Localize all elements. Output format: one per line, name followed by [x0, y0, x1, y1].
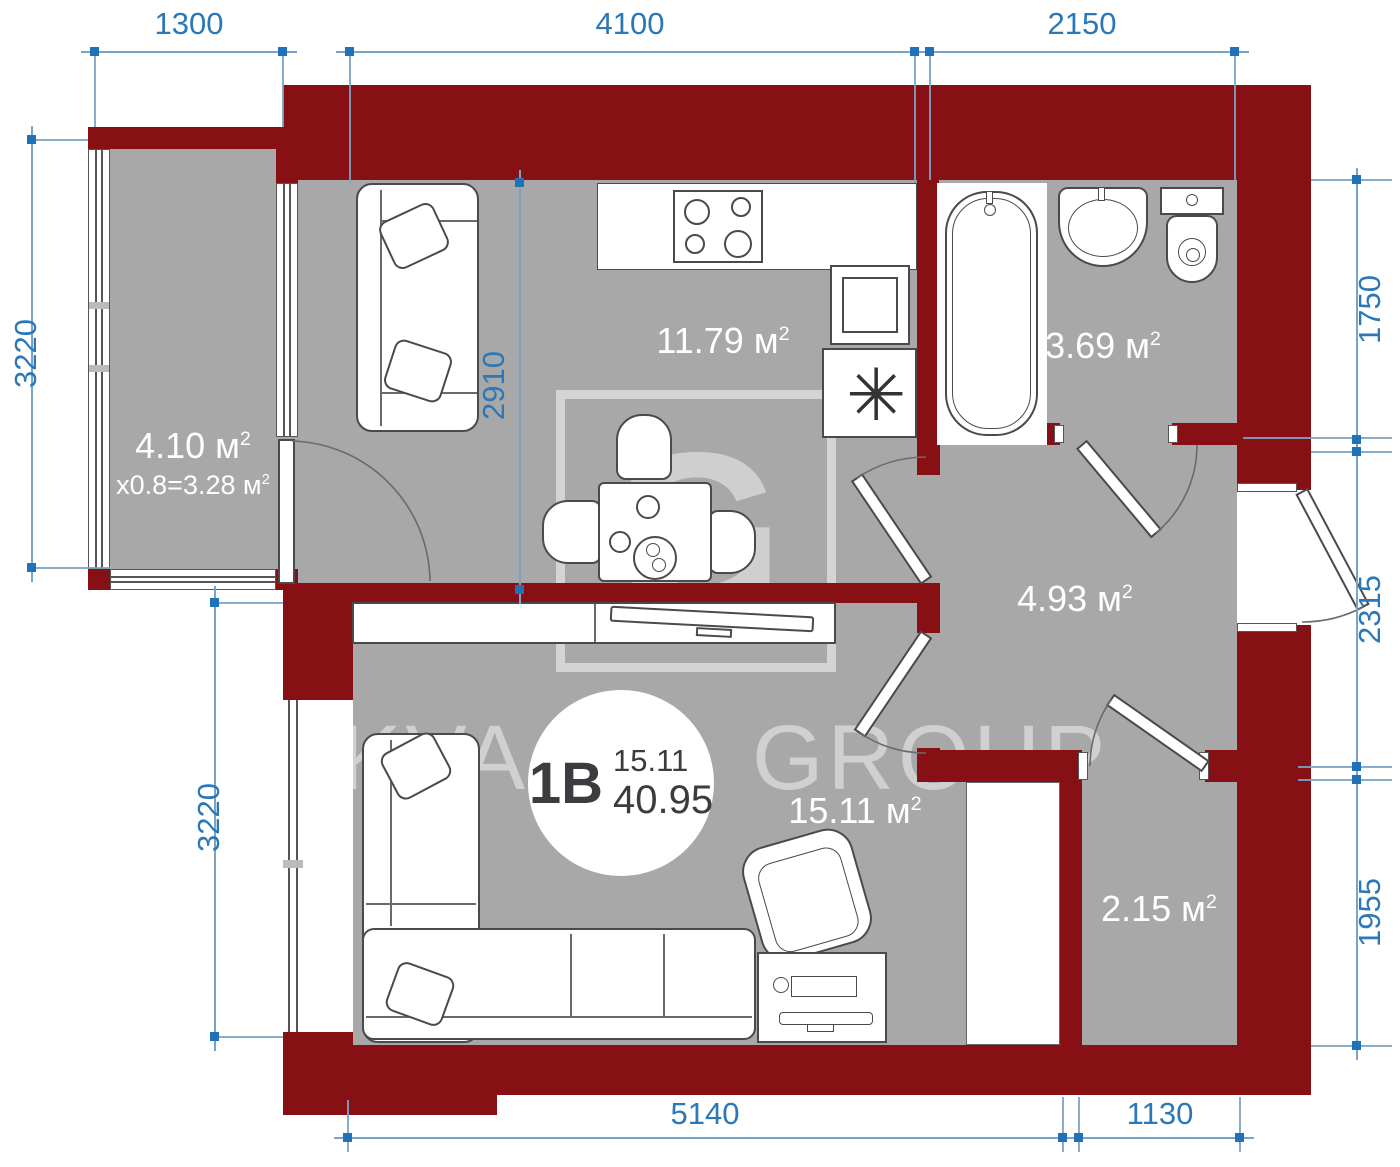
floor-plan: KVA GROUP G [0, 0, 1400, 1167]
dim-ext [32, 139, 88, 141]
kitchen-area-label: 11.79 м2 [630, 320, 816, 362]
dim-marker [1058, 1133, 1067, 1142]
plan-living-area: 15.11 [613, 744, 713, 778]
dim-marker [27, 563, 36, 572]
dim-ext [32, 567, 110, 569]
dim-right-2315: 2315 [1352, 530, 1392, 690]
dim-ext [914, 52, 916, 183]
balcony-area-label: 4.10 м2 [100, 425, 286, 467]
dim-marker [210, 1032, 219, 1041]
storage-door [1090, 695, 1208, 771]
dim-line [916, 51, 1249, 53]
dim-ext [1234, 52, 1236, 180]
hallway-area-label: 4.93 м2 [982, 578, 1168, 620]
bathroom-area-label: 3.69 м2 [1010, 325, 1196, 367]
dim-ext [347, 1100, 349, 1152]
plan-badge: 1B 15.11 40.95 [528, 690, 714, 876]
dim-bottom-1130: 1130 [1070, 1096, 1250, 1132]
dim-marker [910, 47, 919, 56]
dim-ext [215, 1036, 283, 1038]
dim-right-1955: 1955 [1352, 833, 1392, 993]
bathroom-door [1077, 441, 1197, 537]
dim-ext [929, 52, 931, 180]
plan-total-area: 40.95 [613, 778, 713, 822]
plan-type: 1B [529, 750, 603, 817]
balcony-door [279, 440, 430, 583]
dim-marker [1230, 47, 1239, 56]
living-hall-door [855, 632, 931, 753]
toilet-bowl-drain [1186, 248, 1200, 262]
living-area-label: 15.11 м2 [762, 790, 948, 832]
dim-top-4100: 4100 [540, 6, 720, 42]
doors-layer [0, 0, 1400, 1167]
dim-marker [1074, 1133, 1083, 1142]
table-plate [609, 531, 631, 553]
dim-ext [1298, 779, 1392, 781]
dim-marker [278, 47, 287, 56]
dim-ext [1243, 437, 1392, 439]
dim-marker [925, 47, 934, 56]
dim-line [1065, 1137, 1254, 1139]
sink-faucet [1098, 187, 1105, 201]
dim-ext [349, 52, 351, 183]
table-cup [652, 558, 666, 572]
dim-marker [515, 178, 524, 187]
dim-marker [1352, 762, 1361, 771]
dim-marker [1352, 1041, 1361, 1050]
dim-marker [1235, 1133, 1244, 1142]
dim-marker [1352, 175, 1361, 184]
dim-interior-2910: 2910 [476, 296, 516, 476]
dim-left-balcony-3220: 3220 [8, 264, 48, 444]
dim-right-1750: 1750 [1352, 230, 1392, 390]
dim-left-room-3220: 3220 [191, 728, 231, 908]
dim-top-2150: 2150 [992, 6, 1172, 42]
balcony-reduced-label: x0.8=3.28 м2 [90, 470, 296, 501]
dim-top-1300: 1300 [99, 6, 279, 42]
dim-ext [215, 602, 283, 604]
dim-marker [343, 1133, 352, 1142]
table-plate [636, 495, 660, 519]
dim-marker [345, 47, 354, 56]
dim-bottom-5140: 5140 [615, 1096, 795, 1132]
dim-ext [282, 52, 284, 127]
table-cup [646, 543, 660, 557]
storage-area-label: 2.15 м2 [1066, 888, 1252, 930]
dim-marker [515, 585, 524, 594]
bathtub-drain [984, 204, 996, 216]
dim-line [519, 170, 521, 604]
dim-line [334, 1137, 1077, 1139]
dim-ext [1062, 1097, 1064, 1152]
kitchen-hall-door [852, 457, 931, 583]
dim-marker [1352, 435, 1361, 444]
dim-line [336, 51, 929, 53]
dim-ext [94, 52, 96, 127]
dim-marker [1352, 775, 1361, 784]
dim-line [81, 51, 297, 53]
dim-marker [27, 135, 36, 144]
bathtub-faucet [986, 191, 993, 204]
dim-marker [90, 47, 99, 56]
dim-marker [210, 598, 219, 607]
dim-ext [1298, 766, 1392, 768]
dim-marker [1352, 447, 1361, 456]
